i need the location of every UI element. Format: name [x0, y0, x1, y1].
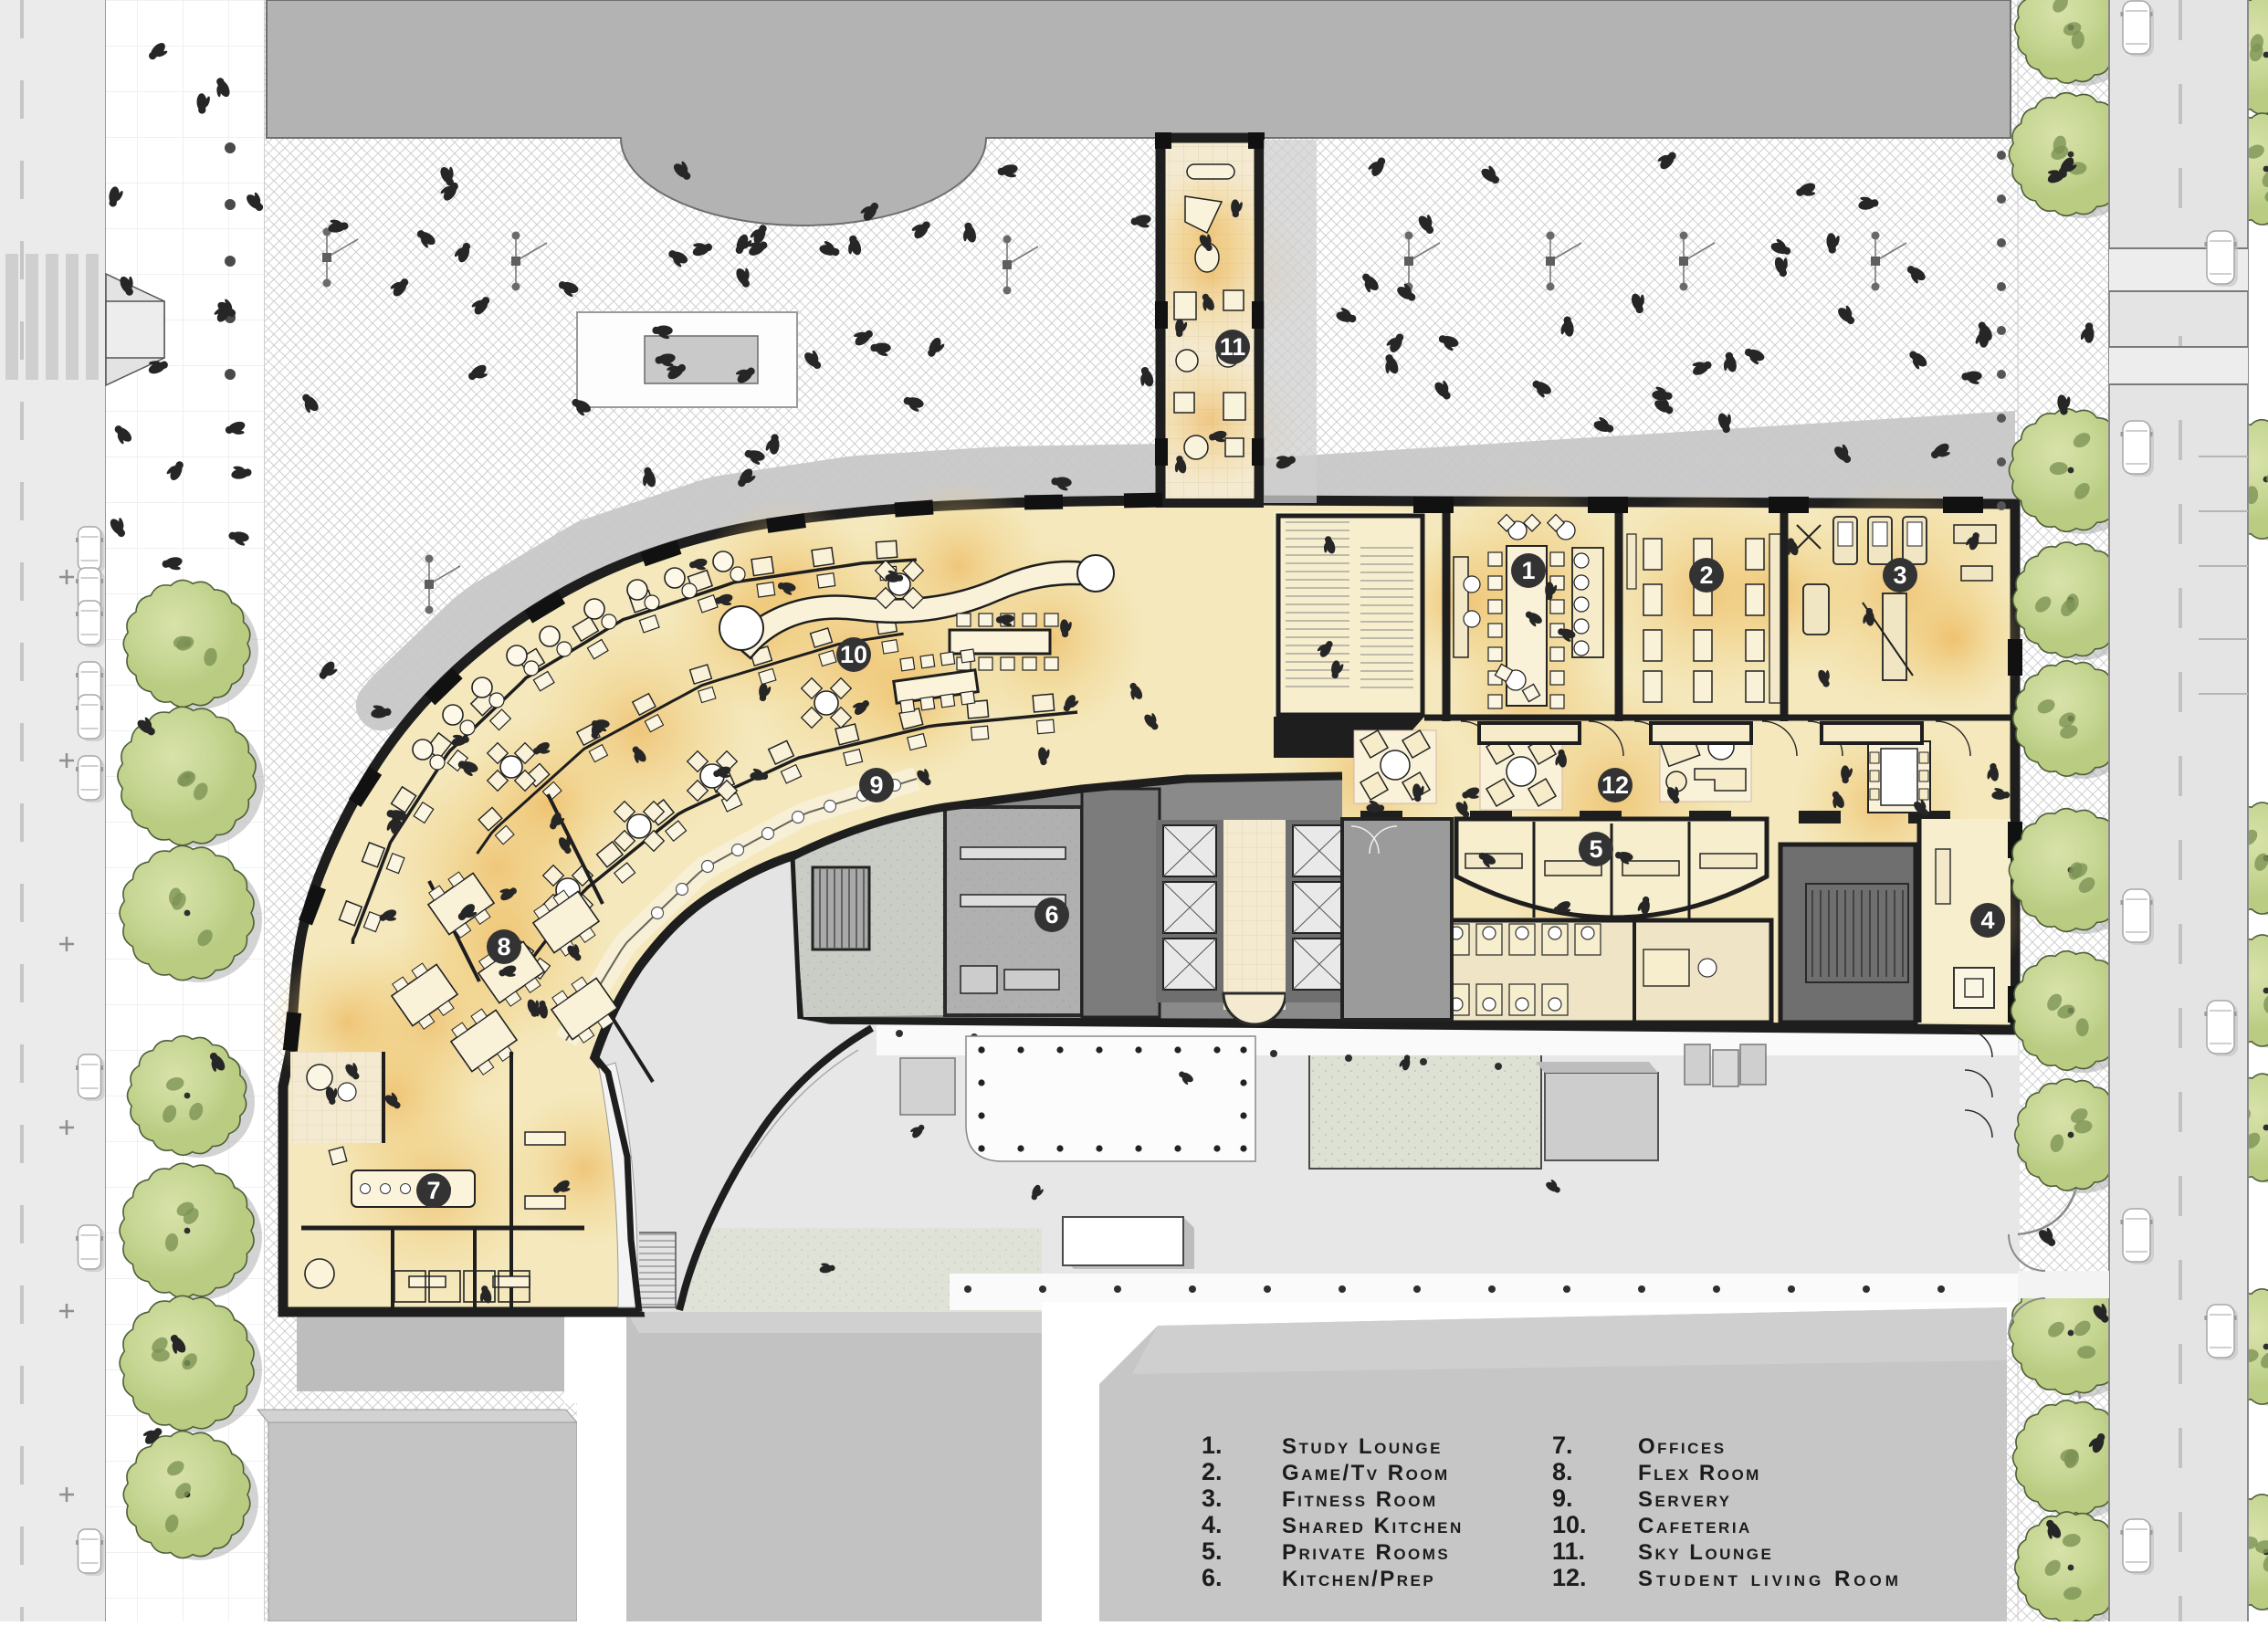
svg-text:Study Lounge: Study Lounge	[1282, 1434, 1443, 1459]
svg-text:9: 9	[869, 771, 883, 799]
svg-text:Servery: Servery	[1638, 1487, 1731, 1512]
svg-text:Fitness Room: Fitness Room	[1282, 1487, 1438, 1512]
svg-text:8.: 8.	[1552, 1458, 1573, 1485]
svg-text:6: 6	[1045, 901, 1058, 928]
svg-text:1.: 1.	[1202, 1432, 1223, 1459]
svg-text:11: 11	[1220, 333, 1246, 361]
svg-text:7.: 7.	[1552, 1432, 1573, 1459]
svg-text:Game/Tv Room: Game/Tv Room	[1282, 1461, 1450, 1485]
svg-text:4.: 4.	[1202, 1511, 1223, 1538]
svg-text:5: 5	[1589, 835, 1602, 863]
svg-text:Student living Room: Student living Room	[1638, 1567, 1902, 1591]
svg-text:10.: 10.	[1552, 1511, 1587, 1538]
svg-text:5.: 5.	[1202, 1537, 1223, 1565]
svg-text:Private Rooms: Private Rooms	[1282, 1540, 1450, 1565]
svg-text:3: 3	[1893, 561, 1906, 589]
svg-text:11.: 11.	[1552, 1537, 1585, 1565]
svg-text:10: 10	[840, 641, 867, 668]
svg-text:Sky Lounge: Sky Lounge	[1638, 1540, 1773, 1565]
svg-text:2.: 2.	[1202, 1458, 1223, 1485]
svg-text:6.: 6.	[1202, 1564, 1223, 1591]
svg-text:12.: 12.	[1552, 1564, 1587, 1591]
svg-text:Shared Kitchen: Shared Kitchen	[1282, 1514, 1464, 1538]
svg-text:12: 12	[1601, 771, 1629, 799]
svg-text:Cafeteria: Cafeteria	[1638, 1514, 1752, 1538]
svg-text:1: 1	[1521, 557, 1535, 584]
svg-text:Flex Room: Flex Room	[1638, 1461, 1761, 1485]
svg-text:7: 7	[426, 1177, 440, 1204]
svg-text:Offices: Offices	[1638, 1434, 1727, 1459]
svg-text:3.: 3.	[1202, 1484, 1223, 1512]
svg-text:4: 4	[1980, 907, 1994, 934]
svg-text:Kitchen/Prep: Kitchen/Prep	[1282, 1567, 1435, 1591]
svg-text:9.: 9.	[1552, 1484, 1573, 1512]
svg-text:8: 8	[497, 933, 510, 960]
svg-text:2: 2	[1699, 561, 1713, 589]
